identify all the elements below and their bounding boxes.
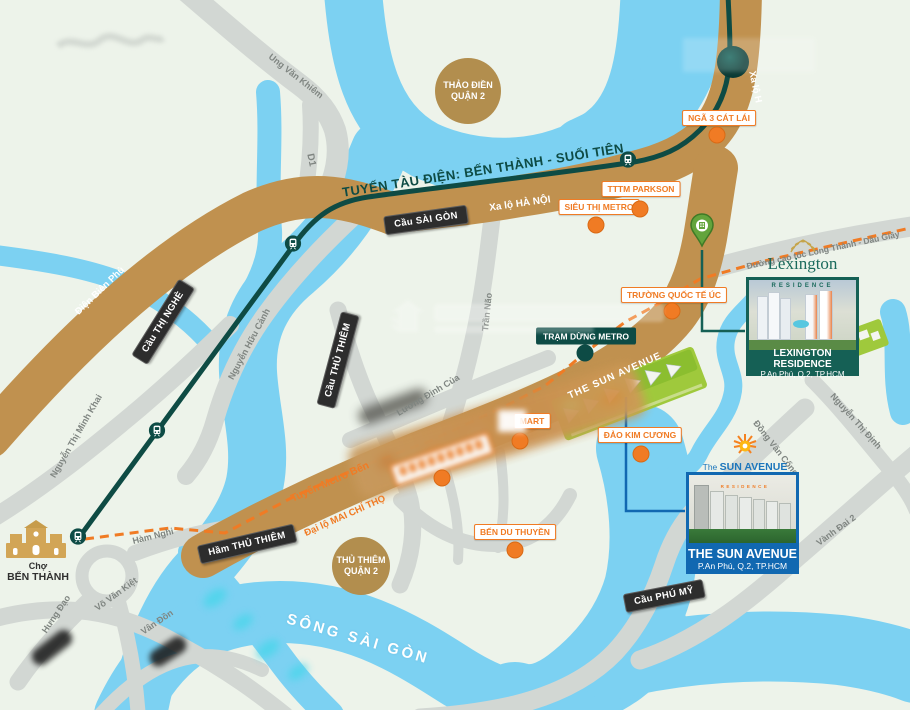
lexington-laurel-icon bbox=[785, 238, 821, 255]
card-layer: Lexington RESIDENCE LEXINGTON RESIDENCE … bbox=[0, 0, 910, 710]
lexington-logo-sub: RESIDENCE bbox=[771, 283, 833, 289]
sun-avenue-logo: The SUN AVENUE RESIDENCE bbox=[700, 433, 790, 493]
lexington-logo: Lexington RESIDENCE bbox=[746, 238, 859, 292]
sun-logo-the: The bbox=[703, 462, 718, 472]
sun-icon bbox=[732, 433, 758, 457]
location-map: Ung Văn KhiêmD1Nguyễn Hữu CảnhNguyễn Thị… bbox=[0, 0, 910, 710]
sun-avenue-caption: THE SUN AVENUE P.An Phú, Q.2, TP.HCM bbox=[686, 543, 799, 574]
sun-avenue-title: THE SUN AVENUE bbox=[686, 547, 799, 561]
lexington-caption: LEXINGTON RESIDENCE P.An Phú, Q.2, TP.HC… bbox=[746, 350, 859, 376]
sun-logo-sub: RESIDENCE bbox=[721, 484, 770, 489]
sun-logo-main: SUN AVENUE bbox=[720, 461, 788, 473]
lexington-title: LEXINGTON RESIDENCE bbox=[746, 348, 859, 370]
sun-avenue-address: P.An Phú, Q.2, TP.HCM bbox=[686, 561, 799, 571]
lexington-logo-text: Lexington bbox=[768, 254, 838, 273]
lexington-address: P.An Phú, Q.2, TP.HCM bbox=[746, 370, 859, 379]
